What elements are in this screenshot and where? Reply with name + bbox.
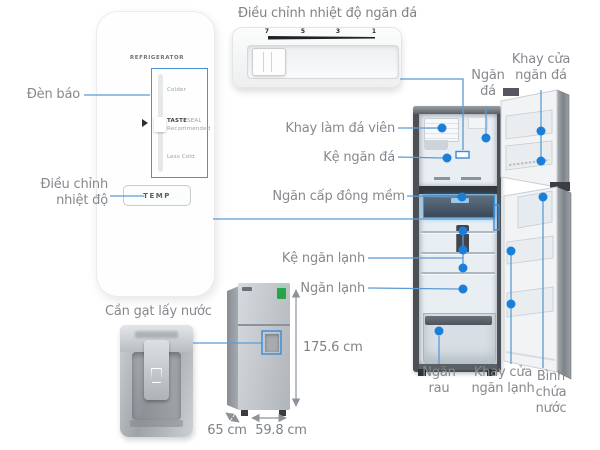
label-line-2: đá xyxy=(466,84,510,100)
dispenser-drip-tray xyxy=(130,420,183,427)
label-ngan-lanh: Ngăn lạnh xyxy=(285,281,365,297)
label-line-2: rau xyxy=(415,381,463,397)
closed-fridge-foot xyxy=(241,410,248,416)
label-depth: 65 cm xyxy=(203,423,251,439)
label-height: 175.6 cm xyxy=(303,340,365,356)
label-line-1: Bình xyxy=(527,369,575,385)
closed-fridge-door-gap xyxy=(238,324,290,326)
label-ngan-da: Ngăn đá xyxy=(466,68,510,100)
label-ngan-cap-dong-mem: Ngăn cấp đông mềm xyxy=(258,189,405,205)
label-line-1: Khay cửa xyxy=(508,52,574,68)
label-line-1: Ngăn xyxy=(466,68,510,84)
label-ke-ngan-da: Kệ ngăn đá xyxy=(295,150,395,166)
label-ke-ngan-lanh: Kệ ngăn lạnh xyxy=(275,251,365,267)
water-tank xyxy=(518,191,552,228)
cup-icon xyxy=(151,368,162,383)
dispenser-cap-etching xyxy=(135,331,178,338)
label-can-gat: Cần gạt lấy nước xyxy=(105,304,215,320)
fridge-door-edge xyxy=(557,187,571,379)
label-khay-lam-da-vien: Khay làm đá viên xyxy=(270,121,395,137)
label-line-2: ngăn đá xyxy=(508,68,574,84)
freezer-door-edge xyxy=(557,90,569,191)
water-dispenser xyxy=(120,325,193,437)
label-width: 59.8 cm xyxy=(252,423,310,439)
closed-fridge-front xyxy=(238,283,290,410)
label-line-2: chứa xyxy=(527,385,575,401)
label-line-1: Ngăn xyxy=(415,365,463,381)
closed-fridge-dispenser xyxy=(265,334,279,352)
brand-logo xyxy=(242,287,252,291)
label-line-3: nước xyxy=(527,401,575,417)
refrigerator-annotation-diagram: REFRIGERATOR Colder TASTESEAL Recommende… xyxy=(0,0,600,450)
closed-fridge-foot xyxy=(279,410,286,416)
label-khay-cua-ngan-da: Khay cửa ngăn đá xyxy=(508,52,574,84)
label-binh-chua-nuoc: Bình chứa nước xyxy=(527,369,575,417)
dispenser-lever xyxy=(144,340,169,400)
label-ngan-rau: Ngăn rau xyxy=(415,365,463,397)
